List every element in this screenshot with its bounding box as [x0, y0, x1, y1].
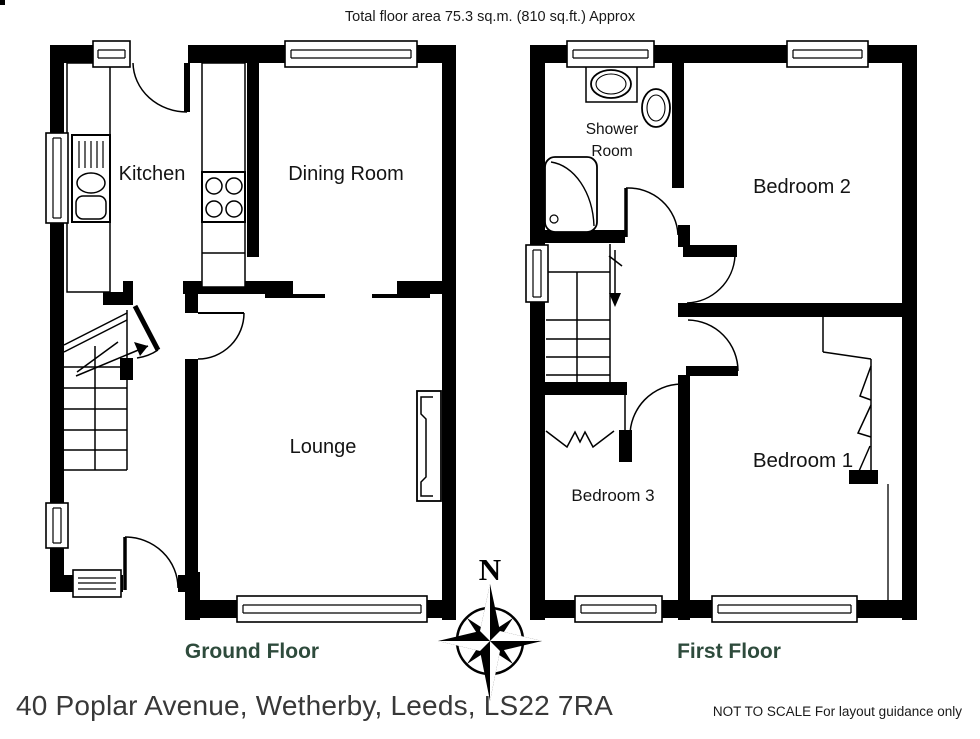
compass-north-label: N	[479, 552, 501, 588]
floorplan-page: Total floor area 75.3 sq.m. (810 sq.ft.)…	[0, 0, 980, 739]
stairs-up-arrow	[134, 342, 148, 356]
window	[526, 245, 548, 302]
window	[567, 41, 654, 67]
window	[237, 596, 427, 622]
kitchen-door-leaf	[184, 63, 190, 112]
first-floor-plan	[526, 41, 917, 622]
hob	[202, 172, 245, 222]
window	[73, 570, 121, 597]
room-label-lounge: Lounge	[290, 436, 357, 460]
total-floor-area-text: Total floor area 75.3 sq.m. (810 sq.ft.)…	[0, 9, 980, 25]
front-door-arc	[125, 537, 178, 588]
bedroom2-door-arc	[687, 256, 735, 303]
kitchen-door-arc	[133, 63, 187, 112]
ground-floor-stairs	[64, 310, 148, 470]
wash-basin	[586, 66, 637, 102]
kitchen-sink	[72, 135, 110, 222]
stairs-down-arrow	[609, 293, 621, 307]
window	[787, 41, 868, 67]
window	[46, 503, 68, 548]
room-label-bedroom2: Bedroom 2	[753, 176, 851, 200]
property-address: 40 Poplar Avenue, Wetherby, Leeds, LS22 …	[16, 690, 613, 722]
fireplace	[417, 391, 441, 501]
toilet	[642, 89, 670, 127]
window	[93, 41, 130, 67]
bedroom1-door-arc	[688, 320, 738, 371]
lounge-door-arc	[198, 313, 244, 359]
first-floor-title: First Floor	[677, 640, 781, 664]
room-label-shower-room: Shower Room	[586, 119, 639, 164]
shower-door-arc	[626, 188, 678, 235]
first-floor-stairs	[546, 244, 622, 382]
window	[712, 596, 857, 622]
floorplan-drawing	[0, 0, 980, 739]
room-label-bedroom3: Bedroom 3	[571, 486, 654, 506]
room-label-kitchen: Kitchen	[119, 163, 186, 187]
window	[575, 596, 662, 622]
ground-floor-walls	[50, 45, 456, 620]
not-to-scale-disclaimer: NOT TO SCALE For layout guidance only	[713, 704, 962, 719]
shower-tray	[545, 157, 597, 232]
window	[285, 41, 417, 67]
room-label-dining: Dining Room	[288, 163, 404, 187]
wardrobe-bedroom3	[546, 395, 625, 447]
window	[46, 133, 68, 223]
bedroom3-door-arc	[630, 384, 681, 437]
room-label-bedroom1: Bedroom 1	[753, 449, 853, 473]
ground-floor-plan	[46, 41, 456, 622]
scan-artifact	[0, 0, 5, 5]
ground-floor-title: Ground Floor	[185, 640, 319, 664]
